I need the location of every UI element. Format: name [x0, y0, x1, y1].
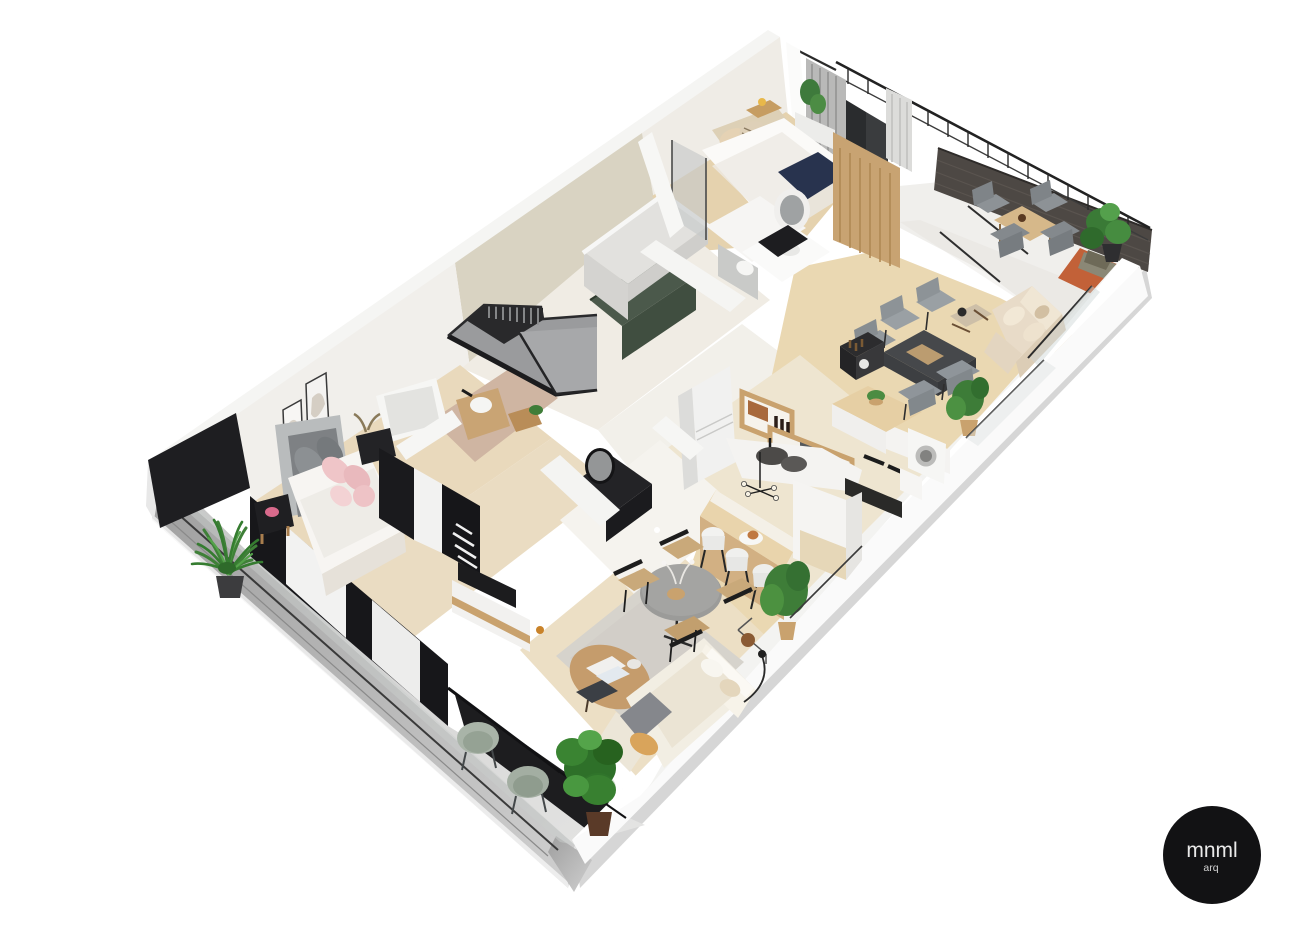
svg-text:mnml: mnml — [1186, 839, 1237, 862]
svg-text:arq: arq — [1203, 862, 1218, 874]
